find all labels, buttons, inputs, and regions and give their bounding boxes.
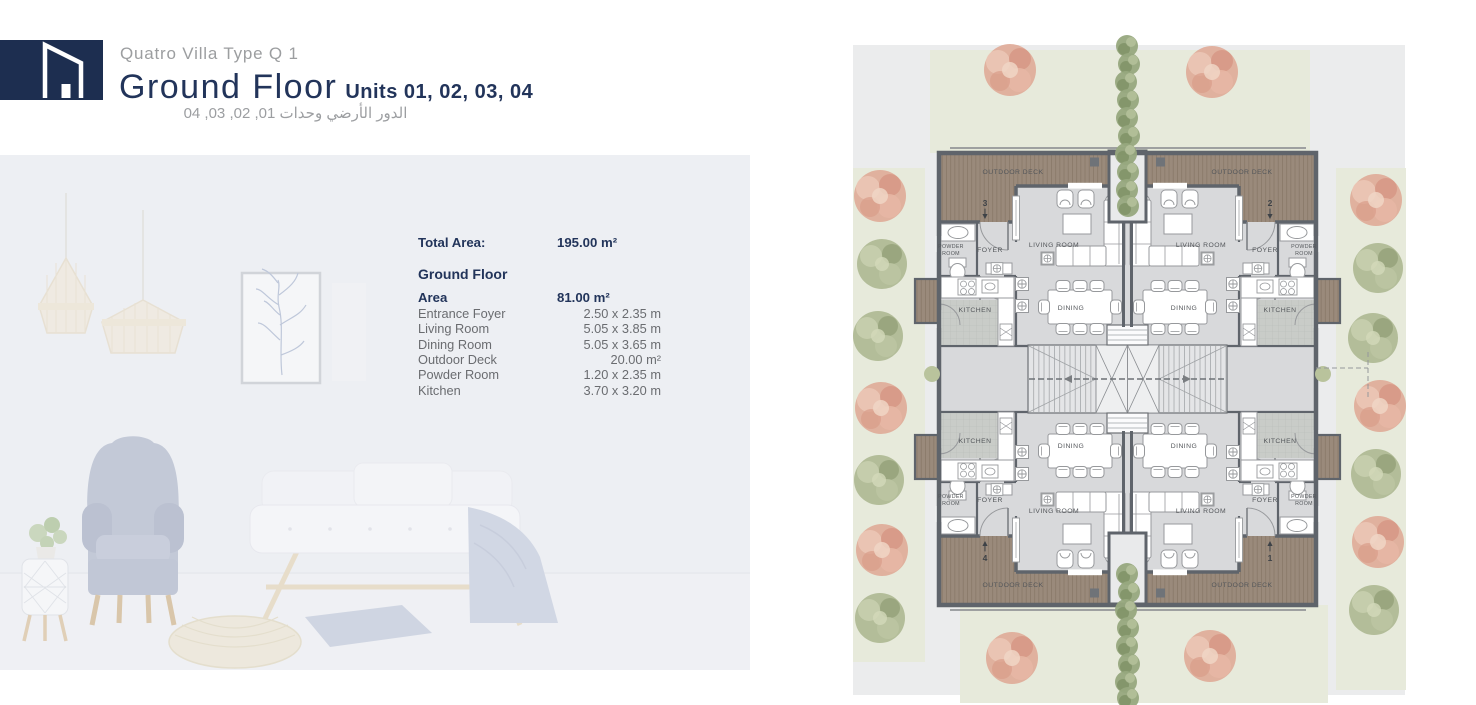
villa-building — [915, 148, 1340, 610]
unit-number: 3 — [983, 198, 988, 208]
room-label-foyer: FOYER — [977, 247, 1003, 254]
floor-plan: OUTDOOR DECK OUTDOOR DECK OUTDOOR DECK O… — [820, 0, 1476, 705]
room-label-powder: ROOM — [1295, 251, 1313, 257]
room-label-powder: ROOM — [1295, 501, 1313, 507]
table-row: Outdoor Deck20.00 m² — [418, 352, 668, 367]
page-title: Ground FloorUnits 01, 02, 03, 04 — [119, 68, 533, 107]
total-area-value: 195.00 m² — [557, 235, 661, 250]
room-label-living-room: LIVING ROOM — [1176, 508, 1226, 515]
interior-photo — [0, 155, 750, 670]
room-label-dining: DINING — [1171, 443, 1198, 450]
area-value: 81.00 m² — [557, 290, 661, 305]
room-label-living-room: LIVING ROOM — [1029, 242, 1079, 249]
total-area-label: Total Area: — [418, 235, 557, 250]
room-label-dining: DINING — [1171, 305, 1198, 312]
table-row: Living Room5.05 x 3.85 m — [418, 321, 668, 336]
room-label-powder: POWDER — [1291, 244, 1317, 250]
building-icon — [0, 40, 103, 100]
room-label-foyer: FOYER — [977, 497, 1003, 504]
area-table: Total Area: 195.00 m² Ground Floor Area … — [418, 235, 668, 398]
units-subtitle: Units 01, 02, 03, 04 — [345, 81, 533, 103]
room-label-outdoor-deck: OUTDOOR DECK — [1212, 582, 1273, 589]
room-label-living-room: LIVING ROOM — [1176, 242, 1226, 249]
room-label-living-room: LIVING ROOM — [1029, 508, 1079, 515]
room-label-outdoor-deck: OUTDOOR DECK — [1212, 169, 1273, 176]
brand-logo — [0, 40, 103, 100]
room-label-powder: POWDER — [1291, 494, 1317, 500]
unit-number: 1 — [1268, 553, 1273, 563]
villa-type-label: Quatro Villa Type Q 1 — [120, 44, 299, 64]
floor-title: Ground Floor — [119, 68, 337, 106]
table-row: Dining Room5.05 x 3.65 m — [418, 337, 668, 352]
unit-number: 2 — [1268, 198, 1273, 208]
area-row: Area 81.00 m² — [418, 290, 668, 305]
area-label: Area — [418, 290, 557, 305]
room-label-kitchen: KITCHEN — [959, 438, 992, 445]
info-panel: Total Area: 195.00 m² Ground Floor Area … — [0, 155, 750, 670]
room-label-kitchen: KITCHEN — [1264, 307, 1297, 314]
room-label-dining: DINING — [1058, 305, 1085, 312]
room-label-kitchen: KITCHEN — [959, 307, 992, 314]
room-label-kitchen: KITCHEN — [1264, 438, 1297, 445]
room-label-powder: POWDER — [938, 494, 964, 500]
table-row: Entrance Foyer2.50 x 2.35 m — [418, 306, 668, 321]
room-label-powder: ROOM — [942, 501, 960, 507]
arabic-title: الدور الأرضي وحدات 01, 02, 03, 04 — [168, 104, 423, 122]
room-label-foyer: FOYER — [1252, 247, 1278, 254]
room-label-powder: POWDER — [938, 244, 964, 250]
room-label-outdoor-deck: OUTDOOR DECK — [983, 169, 1044, 176]
room-label-foyer: FOYER — [1252, 497, 1278, 504]
room-label-outdoor-deck: OUTDOOR DECK — [983, 582, 1044, 589]
floor-heading: Ground Floor — [418, 266, 668, 282]
room-label-powder: ROOM — [942, 251, 960, 257]
room-label-dining: DINING — [1058, 443, 1085, 450]
unit-number: 4 — [983, 553, 988, 563]
brochure-page: { "header": { "brand": "Quatro Villa Typ… — [0, 0, 1476, 705]
table-row: Kitchen3.70 x 3.20 m — [418, 383, 668, 398]
table-row: Powder Room1.20 x 2.35 m — [418, 367, 668, 382]
total-area-row: Total Area: 195.00 m² — [418, 235, 668, 250]
